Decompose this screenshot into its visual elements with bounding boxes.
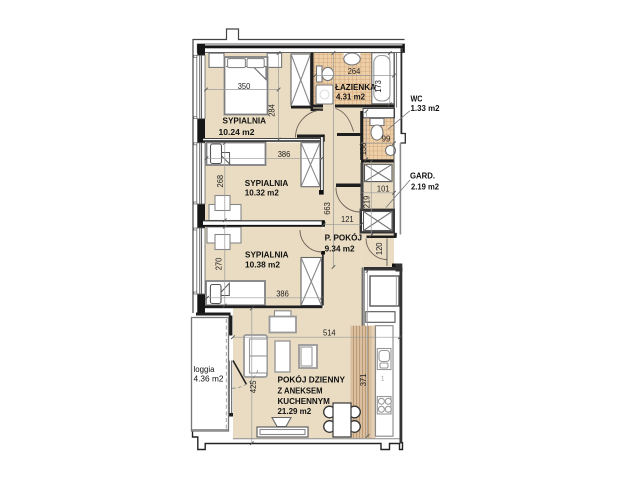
svg-text:120: 120 [375,242,384,255]
svg-text:264: 264 [348,67,361,76]
svg-text:GARD.: GARD. [410,171,435,181]
svg-text:270: 270 [215,257,224,270]
svg-text:663: 663 [323,202,332,215]
svg-text:2.19 m2: 2.19 m2 [411,182,439,192]
svg-text:173: 173 [374,80,383,93]
svg-text:4.31 m2: 4.31 m2 [336,91,365,101]
svg-text:268: 268 [216,174,225,187]
svg-text:Z ANEKSEM: Z ANEKSEM [278,386,323,396]
svg-text:P. POKÓJ: P. POKÓJ [325,231,363,242]
svg-text:SYPIALNIA: SYPIALNIA [223,116,267,126]
svg-text:KUCHENNYM: KUCHENNYM [278,396,330,406]
svg-text:219: 219 [363,195,372,208]
svg-text:350: 350 [238,82,251,91]
svg-text:SYPIALNIA: SYPIALNIA [245,178,288,188]
svg-text:POKÓJ DZIENNY: POKÓJ DZIENNY [278,374,346,385]
svg-text:121: 121 [341,215,354,224]
svg-text:10.38 m2: 10.38 m2 [245,260,280,270]
svg-text:99: 99 [382,134,391,143]
svg-text:425: 425 [249,380,258,393]
svg-text:10.32 m2: 10.32 m2 [245,188,279,198]
svg-text:10.24 m2: 10.24 m2 [219,127,255,137]
svg-text:136: 136 [359,142,368,155]
svg-text:9.34 m2: 9.34 m2 [325,243,355,253]
svg-text:SYPIALNIA: SYPIALNIA [245,250,289,260]
svg-text:284: 284 [268,104,277,117]
svg-text:101: 101 [377,185,390,194]
svg-text:371: 371 [359,373,368,386]
svg-text:21.29 m2: 21.29 m2 [278,406,312,416]
svg-text:1.33 m2: 1.33 m2 [411,103,440,113]
svg-text:386: 386 [276,289,289,298]
svg-text:386: 386 [278,150,291,159]
svg-text:4.36 m2: 4.36 m2 [194,373,224,383]
svg-text:514: 514 [323,329,336,338]
